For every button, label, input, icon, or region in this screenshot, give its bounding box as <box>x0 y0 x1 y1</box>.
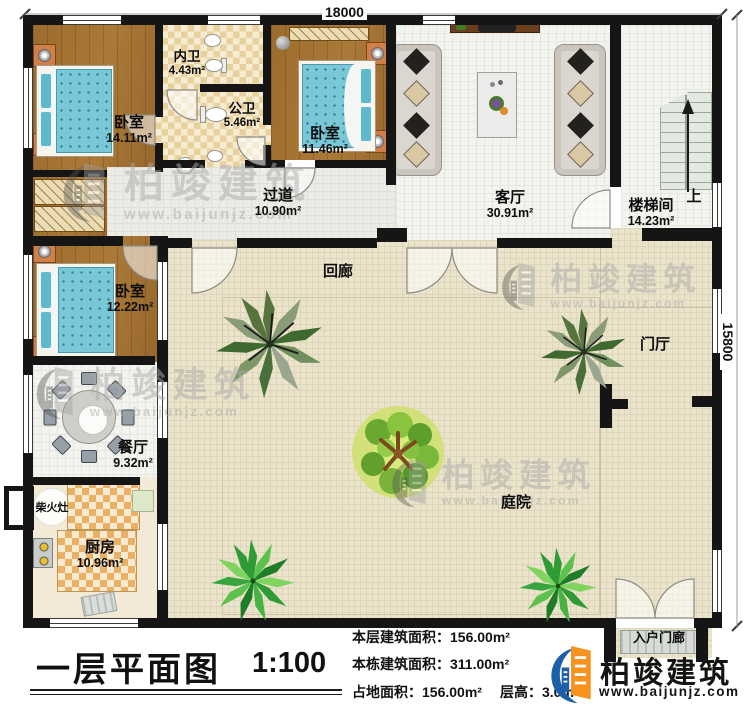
kitchen-label: 厨房10.96m² <box>77 540 124 570</box>
plan-graphic: 餐厅 <box>113 440 153 457</box>
wall-segment <box>694 618 712 628</box>
plan-graphic: 4.43m² <box>169 65 205 78</box>
pillow <box>40 271 52 309</box>
stove-icon <box>33 538 53 568</box>
plan-graphic: 上 <box>686 188 701 205</box>
bedroom-2-label: 卧室11.46m² <box>302 126 348 156</box>
window <box>423 15 455 25</box>
bedroom-1-label: 卧室14.11m² <box>106 115 152 145</box>
wall-segment <box>612 399 628 409</box>
watermark-logo-icon <box>386 458 434 509</box>
wall-segment <box>237 238 377 248</box>
wall-segment <box>386 15 396 185</box>
fern-plant-icon <box>508 542 608 622</box>
wall-segment <box>33 356 155 365</box>
wall-segment <box>642 228 712 241</box>
stairs-rail <box>685 95 687 189</box>
tv-icon <box>478 24 516 32</box>
watermark: 柏竣建筑 www.baijunjz.com <box>30 366 255 421</box>
wall-segment <box>168 238 192 248</box>
living-room-label: 客厅30.91m² <box>487 190 534 220</box>
pillow <box>360 106 372 142</box>
toilet-icon <box>205 59 223 72</box>
cup-deco-icon <box>490 82 495 87</box>
watermark-url: www.baijunjz.com <box>90 404 255 419</box>
brand-url: www.baijunjz.com <box>599 684 740 699</box>
plan-graphic: 14.11m² <box>106 132 152 146</box>
title-underline <box>30 689 342 691</box>
flower-deco-icon <box>500 107 508 115</box>
floor-plan: 柏竣建筑 www.baijunjz.com 柏竣建筑 www.baijunjz.… <box>0 0 750 709</box>
cup-deco-icon <box>498 80 503 85</box>
plan-graphic: 10.90m² <box>255 205 302 219</box>
plan-graphic <box>211 539 294 621</box>
plant-deco-icon <box>456 25 466 30</box>
pillow <box>40 111 52 147</box>
wall-segment <box>315 160 396 168</box>
dimension-top: 18000 <box>322 4 367 20</box>
watermark-name: 柏竣建筑 <box>90 367 255 402</box>
plan-graphic <box>64 163 105 222</box>
watermark: 柏竣建筑 www.baijunjz.com <box>386 458 596 509</box>
window <box>23 68 33 148</box>
foyer-label: 门厅 <box>640 337 670 354</box>
wall-segment <box>610 15 621 187</box>
hallway-label: 过道10.90m² <box>255 188 302 218</box>
watermark-logo-icon <box>496 262 542 312</box>
plan-graphic: 楼梯间 <box>628 198 675 215</box>
plan-graphic <box>541 309 627 396</box>
title-underline-2 <box>30 694 342 695</box>
plan-graphic: 公卫 <box>224 102 260 117</box>
wall-segment <box>692 396 712 407</box>
plan-graphic: 内卫 <box>169 50 205 65</box>
pillow <box>360 68 372 104</box>
plan-graphic: 过道 <box>255 188 302 205</box>
window <box>712 550 722 612</box>
entry-porch-label: 入户门廊 <box>633 631 685 645</box>
bed-mattress <box>58 267 114 353</box>
plan-graphic: 厨房 <box>77 540 124 557</box>
stair-hall-label: 楼梯间14.23m² <box>628 198 675 228</box>
window <box>208 15 260 25</box>
window <box>157 524 168 590</box>
baijun-logo-icon <box>546 645 598 705</box>
dimension-right: 15800 <box>720 314 736 370</box>
plan-graphic: 回廊 <box>323 263 353 280</box>
wall-segment <box>497 238 612 248</box>
wall-segment <box>377 228 407 242</box>
plan-graphic: 30.91m² <box>487 207 534 221</box>
sheet-scale: 1:100 <box>252 647 326 680</box>
plan-graphic: 14.23m² <box>628 215 675 229</box>
plan-graphic: 11.46m² <box>302 143 348 157</box>
dining-room-label: 餐厅9.32m² <box>113 440 153 470</box>
watermark: 柏竣建筑 www.baijunjz.com <box>496 262 701 312</box>
sheet-title: 一层平面图 <box>36 642 221 691</box>
window <box>23 255 33 339</box>
plan-graphic: 柴火灶 <box>36 502 69 514</box>
plan-graphic: 卧室 <box>107 284 154 301</box>
plan-graphic <box>502 263 535 310</box>
plan-graphic: 12.22m² <box>107 301 154 315</box>
kitchen-counter <box>67 480 140 530</box>
window <box>712 183 722 227</box>
watermark-logo-icon <box>30 366 81 421</box>
plan-graphic: 入户门廊 <box>633 630 685 645</box>
cloister-label: 回廊 <box>323 264 353 281</box>
inner-bath-label: 内卫4.43m² <box>169 50 205 77</box>
plan-graphic: 柏竣建筑 www.baijunjz.com <box>550 263 700 310</box>
palm-plant-icon <box>538 306 630 398</box>
wall-segment <box>200 84 271 92</box>
watermark-name: 柏竣建筑 <box>550 263 700 295</box>
plan-graphic: 客厅 <box>487 190 534 207</box>
bed-mattress <box>56 69 112 153</box>
wall-segment <box>33 477 140 485</box>
kitchen-sink-icon <box>132 490 154 512</box>
public-bath-label: 公卫5.46m² <box>224 102 260 129</box>
plan-graphic: 门厅 <box>640 336 670 353</box>
nightstand <box>33 44 56 67</box>
bedroom-3-label: 卧室12.22m² <box>107 284 154 314</box>
courtyard-label: 庭院 <box>501 495 531 512</box>
plan-graphic: 庭院 <box>501 494 531 511</box>
lamp-icon <box>38 245 51 258</box>
dining-chair <box>81 450 97 463</box>
sink-icon <box>207 150 223 162</box>
pillow <box>40 73 52 109</box>
plan-graphic: 柏竣建筑 www.baijunjz.com <box>90 367 255 419</box>
info-land-area: 占地面积：156.00m² <box>352 682 482 702</box>
sink-icon <box>204 34 221 47</box>
wood-stove-label: 柴火灶 <box>36 502 69 514</box>
plan-graphic <box>392 459 425 507</box>
plan-graphic: 10.96m² <box>77 557 124 571</box>
plan-graphic <box>732 10 742 20</box>
fern-plant-icon <box>202 533 304 621</box>
plan-graphic: 卧室 <box>302 126 348 143</box>
window <box>63 15 121 25</box>
info-building-area: 本栋建筑面积：311.00m² <box>352 654 509 674</box>
wardrobe <box>289 27 369 41</box>
wall-segment <box>33 236 123 246</box>
watermark-logo-icon <box>56 162 114 224</box>
pillow <box>40 311 52 349</box>
plan-graphic <box>732 621 742 631</box>
plan-graphic: 卧室 <box>106 115 152 132</box>
window <box>50 618 138 628</box>
plan-graphic <box>520 548 597 622</box>
watermark-url: www.baijunjz.com <box>550 297 700 311</box>
watermark-name: 柏竣建筑 <box>442 459 596 492</box>
wall-segment <box>155 25 163 117</box>
lamp-icon <box>38 49 51 62</box>
plan-graphic: 9.32m² <box>113 457 153 471</box>
info-floor-area: 本层建筑面积：156.00m² <box>352 627 510 647</box>
plan-graphic: 5.46m² <box>224 117 260 130</box>
window <box>157 262 168 340</box>
lamp-icon <box>371 47 384 60</box>
plan-graphic <box>551 646 590 703</box>
floor-lamp-icon <box>276 36 290 50</box>
stairs-up-label: 上 <box>686 189 701 206</box>
plan-graphic <box>37 367 73 419</box>
wall-segment <box>263 25 271 125</box>
